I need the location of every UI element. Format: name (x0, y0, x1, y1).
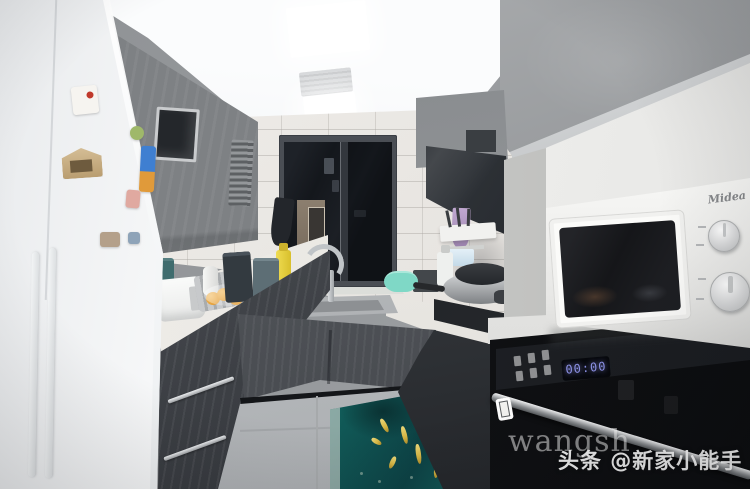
microwave-door-glass (559, 220, 681, 318)
hood-duct (466, 130, 496, 152)
knife (467, 209, 471, 226)
wok-lid (455, 263, 509, 285)
panel-marking (696, 244, 704, 246)
fridge-magnet-figure (100, 232, 120, 247)
microwave-timer-knob (710, 272, 750, 312)
microwave: Midea (542, 174, 750, 352)
glass-reflection (332, 180, 339, 192)
mat-speckle (360, 472, 363, 475)
fridge-magnet-white (71, 85, 100, 116)
microwave-power-knob (708, 220, 740, 252)
knob-grip (728, 276, 733, 293)
knob-grip (723, 223, 727, 237)
microwave-door (548, 209, 691, 328)
floor-grout-line (316, 396, 318, 489)
glass-glint (631, 283, 668, 303)
magnet-detail (70, 159, 93, 173)
mat-speckle (410, 476, 413, 479)
fridge-magnet-green (130, 126, 144, 140)
koi-fish (400, 426, 409, 445)
canister (222, 251, 253, 303)
koi-fish (388, 456, 398, 470)
green-basin (384, 271, 418, 292)
mat-speckle (378, 480, 381, 483)
kitchen-photo: 00:00 Midea wangsh 头条 @新家小能手 (0, 0, 750, 489)
glass-reflection (324, 158, 334, 174)
dispenser-pump (441, 245, 450, 253)
koi-fish (415, 444, 423, 465)
built-in-oven (153, 107, 200, 163)
glass-glint (571, 284, 618, 309)
led-ceiling-panel-1 (286, 0, 371, 58)
mat-edge (330, 406, 340, 489)
window-shade-area (348, 142, 392, 281)
koi-fish (370, 437, 382, 447)
bottle-cap (279, 243, 288, 251)
panel-marking (698, 278, 706, 280)
fridge-magnet-pink (125, 189, 141, 208)
vent-louver-panel (228, 139, 253, 206)
magnet-detail (86, 91, 94, 99)
fridge-sticker-blue (139, 146, 156, 193)
koi-fish (379, 418, 390, 434)
panel-marking (698, 226, 706, 228)
panel-marking (696, 298, 704, 300)
fridge-magnet-small (128, 232, 140, 244)
watermark-credit: 头条 @新家小能手 (558, 445, 742, 475)
